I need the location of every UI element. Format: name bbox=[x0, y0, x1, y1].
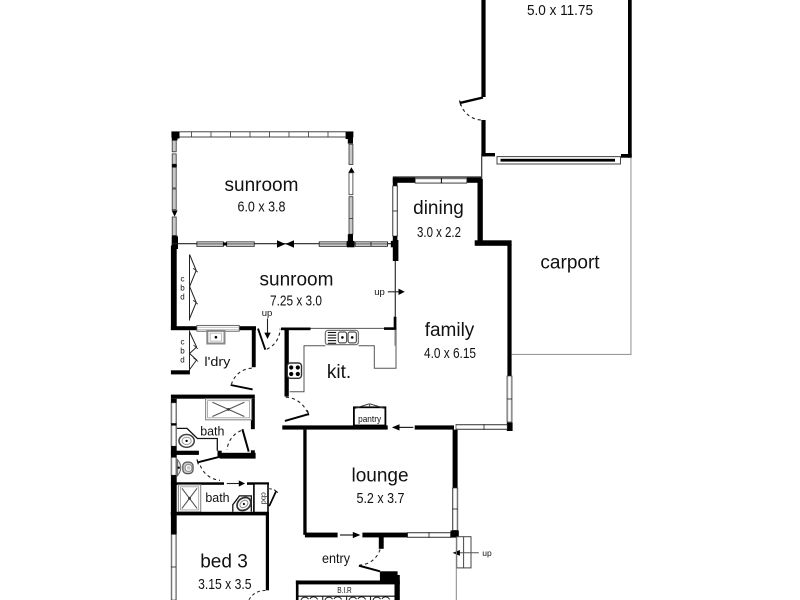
svg-text:sunroom: sunroom bbox=[225, 175, 299, 196]
svg-text:carport: carport bbox=[540, 253, 600, 274]
svg-text:up: up bbox=[482, 548, 492, 558]
svg-text:d: d bbox=[180, 293, 184, 302]
svg-text:bath: bath bbox=[205, 491, 229, 505]
svg-text:dining: dining bbox=[413, 198, 464, 219]
svg-text:b: b bbox=[180, 347, 185, 356]
svg-text:cbd: cbd bbox=[259, 492, 268, 504]
svg-text:up: up bbox=[262, 308, 273, 319]
svg-text:6.0 x 3.8: 6.0 x 3.8 bbox=[238, 199, 286, 216]
svg-text:l'dry: l'dry bbox=[204, 354, 231, 369]
svg-text:4.0 x 6.15: 4.0 x 6.15 bbox=[424, 345, 476, 362]
svg-text:5.0 x 11.75: 5.0 x 11.75 bbox=[527, 2, 593, 19]
svg-text:c: c bbox=[181, 275, 185, 284]
svg-text:B.I.R: B.I.R bbox=[337, 586, 352, 595]
svg-text:up: up bbox=[374, 287, 385, 298]
svg-text:bed 3: bed 3 bbox=[200, 552, 248, 573]
svg-text:sunroom: sunroom bbox=[260, 270, 334, 291]
svg-text:bath: bath bbox=[200, 425, 224, 439]
svg-text:5.2 x 3.7: 5.2 x 3.7 bbox=[357, 490, 405, 507]
svg-text:d: d bbox=[180, 356, 184, 365]
svg-text:b: b bbox=[180, 284, 185, 293]
svg-text:3.15 x 3.5: 3.15 x 3.5 bbox=[198, 576, 251, 593]
svg-text:family: family bbox=[425, 320, 475, 341]
svg-text:pantry: pantry bbox=[358, 414, 381, 425]
svg-text:entry: entry bbox=[322, 550, 350, 566]
svg-text:c: c bbox=[181, 338, 185, 347]
svg-text:7.25 x 3.0: 7.25 x 3.0 bbox=[270, 293, 322, 310]
svg-text:kit.: kit. bbox=[327, 362, 351, 383]
svg-text:3.0 x 2.2: 3.0 x 2.2 bbox=[417, 224, 461, 241]
svg-text:lounge: lounge bbox=[351, 466, 408, 487]
